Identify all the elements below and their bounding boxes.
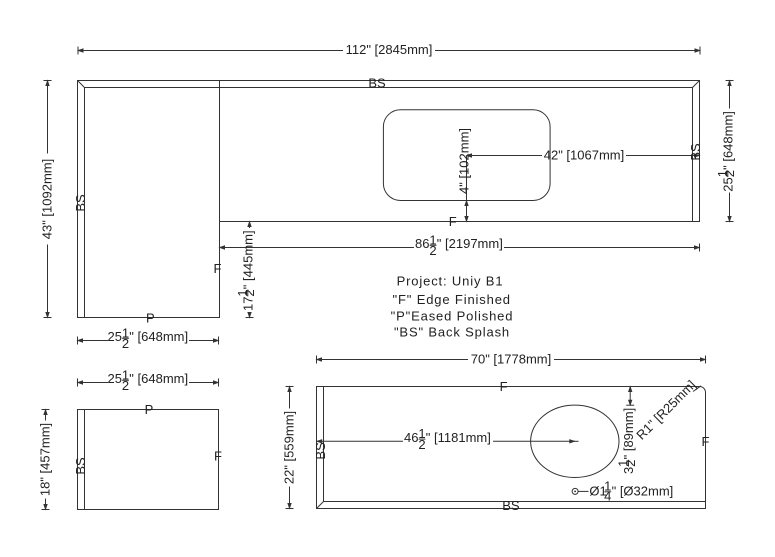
svg-text:" [648mm]: " [648mm] (129, 329, 188, 344)
svg-text:BS: BS (73, 194, 88, 212)
svg-text:86: 86 (415, 236, 429, 251)
svg-text:F: F (214, 449, 222, 464)
svg-text:25: 25 (721, 177, 736, 191)
svg-text:F: F (500, 379, 508, 394)
svg-text:2: 2 (122, 336, 129, 351)
svg-text:" [Ø32mm]: " [Ø32mm] (612, 484, 674, 499)
svg-text:4" [102mm]: 4" [102mm] (457, 128, 472, 194)
svg-text:BS: BS (73, 457, 88, 475)
svg-text:2: 2 (429, 243, 436, 258)
svg-text:17: 17 (241, 297, 256, 311)
svg-text:BS: BS (313, 442, 328, 460)
svg-text:" [648mm]: " [648mm] (129, 371, 188, 386)
svg-text:2: 2 (242, 289, 257, 296)
svg-text:"P"Eased Polished: "P"Eased Polished (391, 308, 514, 323)
svg-text:" [648mm]: " [648mm] (721, 111, 736, 170)
svg-text:" [2197mm]: " [2197mm] (437, 236, 503, 251)
svg-text:42" [1067mm]: 42" [1067mm] (544, 148, 625, 163)
svg-text:"BS" Back Splash: "BS" Back Splash (394, 325, 510, 340)
svg-text:"F" Edge Finished: "F" Edge Finished (393, 292, 511, 307)
svg-text:4: 4 (604, 489, 611, 504)
svg-text:P: P (146, 311, 155, 326)
svg-text:22" [559mm]: 22" [559mm] (282, 411, 297, 484)
svg-text:BS: BS (368, 76, 386, 91)
svg-text:" [445mm]: " [445mm] (241, 230, 256, 289)
svg-text:2: 2 (122, 378, 129, 393)
svg-text:25: 25 (108, 371, 122, 386)
svg-text:43" [1092mm]: 43" [1092mm] (40, 159, 55, 240)
svg-text:Project: Uniy B1: Project: Uniy B1 (397, 274, 504, 289)
svg-text:46: 46 (404, 430, 418, 445)
svg-text:3: 3 (621, 467, 636, 474)
svg-text:112" [2845mm]: 112" [2845mm] (346, 42, 433, 57)
svg-text:F: F (214, 261, 222, 276)
svg-text:R1" [R25mm]: R1" [R25mm] (633, 377, 698, 442)
svg-text:70" [1778mm]: 70" [1778mm] (471, 352, 552, 367)
svg-text:2: 2 (623, 460, 638, 467)
svg-text:25: 25 (108, 329, 122, 344)
svg-text:F: F (449, 214, 457, 229)
svg-text:" [1181mm]: " [1181mm] (426, 430, 491, 445)
svg-text:BS: BS (502, 498, 520, 513)
svg-text:18" [457mm]: 18" [457mm] (38, 423, 53, 496)
svg-text:2: 2 (722, 170, 737, 177)
svg-text:BS: BS (688, 143, 703, 161)
svg-text:P: P (145, 402, 154, 417)
svg-text:F: F (702, 434, 710, 449)
svg-text:2: 2 (418, 437, 425, 452)
